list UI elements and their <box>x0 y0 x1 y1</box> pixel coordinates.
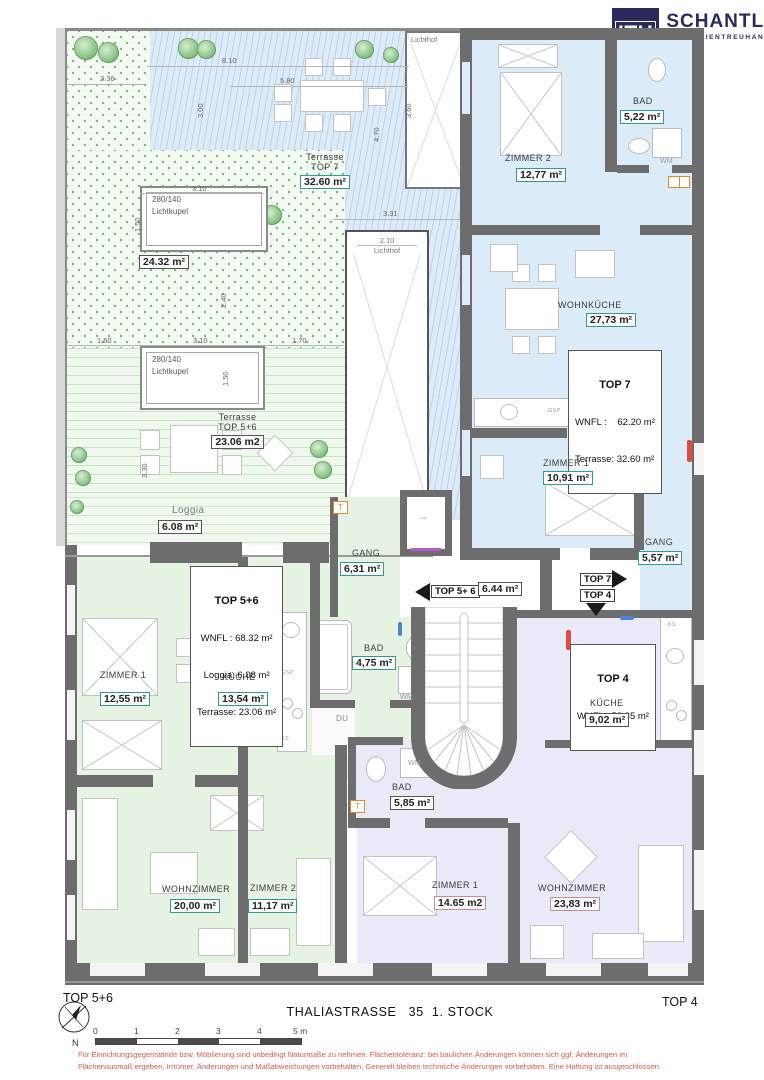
room-label: GANG <box>645 537 673 547</box>
dim-label: 1.70 <box>292 336 307 345</box>
wall <box>348 737 403 745</box>
window-opening <box>67 585 75 635</box>
area-value: 27,73 m² <box>586 313 636 327</box>
window-opening <box>90 963 145 976</box>
wall <box>460 28 704 40</box>
terrace-chair <box>333 114 351 132</box>
room-label: ZIMMER 2 <box>250 883 296 893</box>
lichtkupel-1-label: 280/140Lichtkupel <box>152 194 188 218</box>
north-arrow-icon <box>55 999 93 1041</box>
disclaimer-line1: Für Einrichtungsgegenstände bzw. Möblier… <box>78 1050 738 1059</box>
scale-tick: 4 <box>257 1026 262 1036</box>
wall <box>310 557 320 700</box>
dim-label: 3.10 <box>192 184 207 193</box>
ks-label: KS <box>668 622 676 628</box>
bed <box>363 856 437 916</box>
elevator: → <box>400 490 452 556</box>
room-label: ZIMMER 1 <box>543 458 589 468</box>
terrace-top56-area-value: 23.06 m2 <box>211 435 263 449</box>
elevator-arrow-icon: → <box>417 509 429 523</box>
hob-burner <box>292 708 303 719</box>
dim-label: 3.00 <box>196 103 205 118</box>
area-value: 13,54 m² <box>218 692 268 706</box>
room-label: KÜCHE <box>590 698 624 708</box>
wall <box>692 40 704 565</box>
nav-top56: TOP 5+ 6 <box>431 585 480 598</box>
dim-label: 1.50 <box>221 371 230 386</box>
wall <box>472 225 600 235</box>
scale-tick: 3 <box>216 1026 221 1036</box>
gsp-label: GSP <box>548 408 561 414</box>
wall <box>540 557 552 610</box>
dim-label: 1.60 <box>97 336 112 345</box>
arrow-down-icon <box>586 603 606 616</box>
window-opening <box>67 690 75 740</box>
dim-label: 2.36 <box>100 74 115 83</box>
terrace-top7-label: Terrasse TOP 7 32.60 m² <box>270 152 380 190</box>
tree-icon <box>310 440 328 458</box>
room-label: KÜCHE <box>222 672 256 682</box>
window-opening <box>462 62 470 114</box>
wall <box>348 818 390 828</box>
terrace56-chair <box>222 455 242 475</box>
washing-machine <box>652 128 682 158</box>
wall <box>617 165 649 173</box>
armchair <box>210 795 264 831</box>
arrow-right-icon <box>612 570 627 588</box>
scale-tick: 2 <box>175 1026 180 1036</box>
dim-label: 3.10 <box>193 336 208 345</box>
area-value: 14.65 m2 <box>434 896 486 910</box>
sofa <box>638 845 684 942</box>
wall <box>590 548 640 560</box>
loggia-area-value: 6.08 m² <box>158 520 202 534</box>
area-value: 4,75 m² <box>352 656 396 670</box>
scale-tick: 5 m <box>293 1026 307 1036</box>
lichthof-1: Lichthof <box>405 31 466 189</box>
area-value: 10,91 m² <box>543 471 593 485</box>
plan-title: THALIASTRASSE 35 1. STOCK <box>225 1005 555 1019</box>
wardrobe <box>82 720 162 770</box>
area-value: 11,17 m² <box>248 899 297 913</box>
wardrobe <box>498 44 558 68</box>
tree-icon <box>74 36 98 60</box>
t-marker: T <box>350 800 365 813</box>
bed <box>296 858 331 946</box>
wall <box>310 700 355 708</box>
window-opening <box>205 963 260 976</box>
window-opening <box>648 963 688 976</box>
lichthof-2-label: 2.10 Lichthof <box>347 236 427 255</box>
area-value: 12,55 m² <box>100 692 150 706</box>
terrace-top56-label: Terrasse TOP 5+6 23.06 m2 <box>185 412 290 450</box>
loggia-label: Loggia <box>172 505 204 516</box>
tree-icon <box>71 447 87 463</box>
dim-label: 4.70 <box>372 127 381 142</box>
window-opening <box>462 255 470 305</box>
hob-burner <box>666 700 677 711</box>
cabinet <box>592 933 644 959</box>
terrace-chair <box>274 104 292 122</box>
wall <box>605 40 617 172</box>
window-opening <box>432 963 487 976</box>
bed <box>82 618 158 696</box>
lichthof-1-label: Lichthof <box>411 35 437 44</box>
terrace-top7-area-value: 32.60 m² <box>300 175 350 189</box>
hall-area-value: 6.44 m² <box>478 582 522 596</box>
dim-label: 8.10 <box>222 56 237 65</box>
floorplan-page: ITH SCHANTL IMMOBILIENTREUHAND 280/ <box>0 0 764 1080</box>
t-marker: T <box>333 501 348 514</box>
side-table <box>530 925 564 959</box>
window-opening <box>694 730 704 775</box>
terrace-chair <box>368 88 386 106</box>
wall <box>195 775 248 787</box>
room-label: WOHNKÜCHE <box>558 300 622 310</box>
window-opening <box>318 963 373 976</box>
wall-pier <box>283 542 329 563</box>
window-opening <box>462 430 470 476</box>
side-table <box>480 455 504 479</box>
room-label: BAD <box>633 96 653 106</box>
room-label: ZIMMER 2 <box>505 153 551 163</box>
wall <box>672 165 692 173</box>
room-label: ZIMMER 1 <box>432 880 478 890</box>
kitchen-island <box>575 250 615 278</box>
tree-icon <box>314 461 332 479</box>
north-label: N <box>72 1038 79 1048</box>
nav-top7: TOP 7 <box>580 573 615 586</box>
sink <box>500 404 518 420</box>
dresser <box>250 928 290 956</box>
scale-tick: 0 <box>93 1026 98 1036</box>
wall <box>640 225 692 235</box>
toilet <box>648 58 666 82</box>
area-value: 9,02 m² <box>585 713 629 727</box>
terrace-top7-strip <box>425 230 462 520</box>
dim-label: 3.60 <box>404 103 413 118</box>
lichthof-2: 2.10 Lichthof <box>345 230 429 504</box>
area-value: 5,57 m² <box>638 551 682 565</box>
room-label: BAD <box>364 643 384 653</box>
wall <box>330 497 338 617</box>
area-value: 20,00 m² <box>170 899 220 913</box>
washbasin <box>628 138 650 154</box>
sink <box>666 648 684 664</box>
wall-pier <box>150 542 242 563</box>
tree-icon <box>178 38 199 59</box>
elevator-door <box>411 548 441 551</box>
wm-label: WM <box>660 158 673 165</box>
window-opening <box>67 895 75 940</box>
window-opening <box>694 443 704 475</box>
chair <box>512 336 530 354</box>
dim-label: 2.40 <box>219 293 228 308</box>
hob-burner <box>282 698 293 709</box>
scale-tick: 1 <box>134 1026 139 1036</box>
heater-icon <box>668 176 690 188</box>
lichtkupel-2-label: 280/140Lichtkupel <box>152 354 188 378</box>
tree-icon <box>383 47 399 63</box>
garden-area-value: 24.32 m² <box>139 255 189 269</box>
window-opening <box>694 640 704 685</box>
chair <box>538 336 556 354</box>
room-label: ZIMMER 1 <box>100 670 146 680</box>
window-opening <box>67 810 75 860</box>
top56-info-box: TOP 5+6 WNFL : 68.32 m² Loggia: 6.08 m² … <box>190 566 283 747</box>
washbasin <box>366 756 386 782</box>
vent <box>620 616 634 620</box>
dim-label: 3.30 <box>140 463 149 478</box>
tree-icon <box>75 470 91 486</box>
radiator <box>687 440 692 462</box>
wall <box>508 823 520 965</box>
kitchen-counter-top4 <box>660 615 692 745</box>
area-value: 12,77 m² <box>516 168 566 182</box>
chair <box>538 264 556 282</box>
terrace-table <box>300 80 364 112</box>
footer-top4-label: TOP 4 <box>662 995 698 1009</box>
dim-label: 5.80 <box>280 76 295 85</box>
staircase <box>411 607 517 789</box>
wm-label: WM <box>408 760 421 767</box>
nav-top4: TOP 4 <box>580 589 615 602</box>
window-opening <box>546 963 601 976</box>
wm-label: WM <box>400 694 413 701</box>
wall <box>238 787 248 965</box>
wall <box>472 428 567 438</box>
dim-label: 1.50 <box>133 217 142 232</box>
area-value: 5,85 m² <box>390 796 434 810</box>
terrace-chair <box>305 114 323 132</box>
site-edge-shading <box>56 28 65 546</box>
scale-bar <box>95 1038 302 1045</box>
tree-icon <box>197 40 216 59</box>
room-label: WOHNZIMMER <box>162 884 230 894</box>
sofa <box>82 798 118 910</box>
sill-line <box>65 981 704 983</box>
dim-label: 3.31 <box>383 209 398 218</box>
terrace-chair <box>333 58 351 76</box>
room-label: GANG <box>352 548 380 558</box>
disclaimer-line2: Flächenausmaß ergeben. Irrtümer, Änderun… <box>78 1062 738 1071</box>
wall <box>425 818 508 828</box>
wall <box>335 745 347 965</box>
sink <box>282 622 300 638</box>
room-label: WOHNZIMMER <box>538 883 606 893</box>
tree-icon <box>355 40 374 59</box>
cabinet <box>490 244 518 272</box>
area-value: 5,22 m² <box>620 110 664 124</box>
dining-table <box>505 288 559 330</box>
wall <box>65 775 153 787</box>
tree-icon <box>70 500 84 514</box>
area-value: 23,83 m² <box>550 897 600 911</box>
bed <box>500 72 562 156</box>
du-label: DU <box>336 714 348 723</box>
vent <box>398 622 402 636</box>
cabinet <box>198 928 235 956</box>
window-opening <box>694 850 704 910</box>
terrace56-chair <box>140 430 160 450</box>
hob-burner <box>676 710 687 721</box>
tree-icon <box>98 42 119 63</box>
arrow-left-icon <box>415 583 430 601</box>
terrace-chair <box>305 58 323 76</box>
room-label: BAD <box>392 782 412 792</box>
area-value: 6,31 m² <box>340 562 384 576</box>
